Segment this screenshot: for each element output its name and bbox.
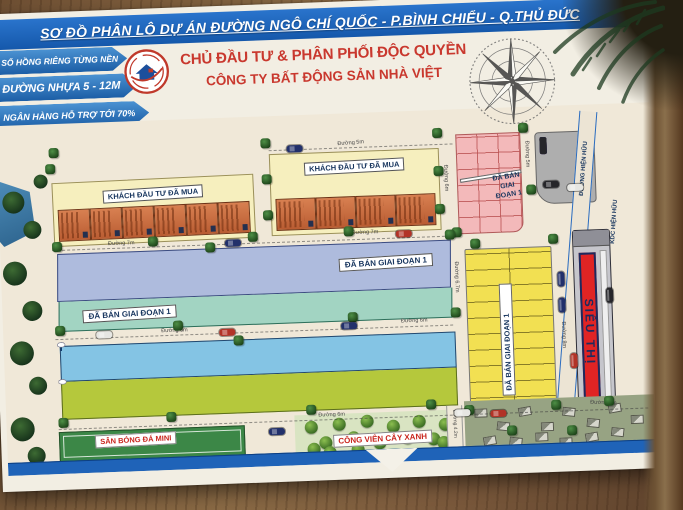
tree-icon [432,128,442,138]
tree-icon [205,242,215,252]
road-label: Đường 5m [523,141,530,168]
tree-icon [45,164,55,174]
palm-tree-icon [9,341,34,366]
site-plan-map: KHÁCH ĐẦU TƯ ĐÃ MUA KHÁCH ĐẦU TƯ ĐÃ MUA … [0,102,662,476]
house-icon [611,427,625,437]
car-icon [96,331,112,339]
lot-area-chip [57,343,64,347]
tree-icon [604,396,614,406]
car-icon [539,137,547,154]
road-label: Đường 7m [352,229,379,236]
ribbon-label: SỔ HỒNG RIÊNG TỪNG NỀN [1,54,118,68]
house-icon [154,204,187,237]
road-label: Đường 8m [560,321,567,348]
supermarket-sign: SIÊU THỊ [579,252,602,411]
roof-canopy [573,230,610,247]
park-tree-icon [360,415,373,428]
palm-tree-icon [29,376,48,395]
tree-icon [55,326,65,336]
palm-tree-icon [33,174,48,189]
tree-icon [343,226,353,236]
car-icon [543,181,559,189]
road-label: Đường 6m [318,412,345,419]
house-icon [217,201,250,234]
tree-icon [567,425,577,435]
tree-icon [263,210,273,220]
tree-icon [173,320,183,330]
house-icon [122,205,155,238]
tree-icon [507,425,517,435]
house-icon [541,422,554,431]
tree-icon [306,405,316,415]
photo-of-subdivision-map-poster: { "banner": { "title": "SƠ ĐỒ PHÂN LÔ DỰ… [0,0,683,510]
house-icon [395,193,436,226]
car-icon [606,288,614,303]
house-icon [275,198,316,231]
car-icon [219,329,235,337]
car-icon [558,297,566,312]
palm-tree-icon [22,301,43,322]
park-tree-icon [305,421,318,434]
tree-icon [435,204,445,214]
car-icon [396,230,412,238]
tree-icon [551,400,561,410]
tree-icon [470,239,480,249]
house-icon [535,432,548,441]
ribbon-label: ĐƯỜNG NHỰA 5 - 12M [2,80,121,96]
road-label: Đường 6.7m [453,261,460,292]
lot-cell [61,347,62,351]
compass-rose-icon [465,34,560,129]
tree-icon [262,174,272,184]
house-icon [631,415,644,424]
tree-icon [548,234,558,244]
road-label: Đường 6m [401,317,428,324]
feature-ribbon-road: ĐƯỜNG NHỰA 5 - 12M [0,73,139,102]
car-icon [454,409,470,417]
car-icon [269,428,285,436]
tree-icon [233,335,243,345]
tree-icon [166,412,176,422]
house-icon [562,407,576,417]
company-name: CÔNG TY BẤT ĐỘNG SẢN NHÀ VIỆT [176,64,472,90]
block-investor-east: KHÁCH ĐẦU TƯ ĐÃ MUA [269,148,442,236]
road-label: Đường 7m [108,240,135,247]
car-icon [557,271,565,286]
palm-tree-icon [3,261,28,286]
label-text: ĐÃ BÁN GIAI ĐOẠN 1 [491,171,525,202]
block-label: KHÁCH ĐẦU TƯ ĐÃ MUA [304,157,405,175]
palm-tree-icon [10,417,35,442]
tree-icon [148,236,158,246]
house-icon [185,202,218,235]
house-icon [315,196,356,229]
palm-tree-icon [23,221,42,240]
house-row [275,193,436,231]
house-icon [90,207,123,240]
car-icon [225,239,241,247]
tree-icon [248,232,258,242]
walkway [600,250,613,412]
tree-icon [48,148,58,158]
company-logo-icon [123,48,171,96]
tree-icon [445,229,455,239]
car-icon [286,145,302,153]
tree-icon [58,418,68,428]
tree-icon [526,184,536,194]
tree-icon [426,399,436,409]
lot-area-chip [58,380,65,384]
block-label: KHÁCH ĐẦU TƯ ĐÃ MUA [102,184,203,203]
car-icon [490,410,506,418]
tree-icon [433,166,443,176]
car-icon [570,353,578,368]
ribbon-label: NGÂN HÀNG HỖ TRỢ TỚI 70% [3,108,135,123]
car-icon [567,184,583,192]
tree-icon [260,138,270,148]
feature-ribbon-red-book: SỔ HỒNG RIÊNG TỪNG NỀN [0,46,128,75]
house-icon [355,195,396,228]
supermarket-label: SIÊU THỊ [582,298,598,365]
car-icon [341,322,357,330]
photo-corner-shadow [563,0,683,110]
house-icon [58,208,91,241]
tree-icon [348,312,358,322]
tree-icon [451,307,461,317]
existing-residential-label: KDC HIỆN HỮU [610,199,619,244]
tree-icon [52,242,62,252]
house-icon [586,418,600,428]
